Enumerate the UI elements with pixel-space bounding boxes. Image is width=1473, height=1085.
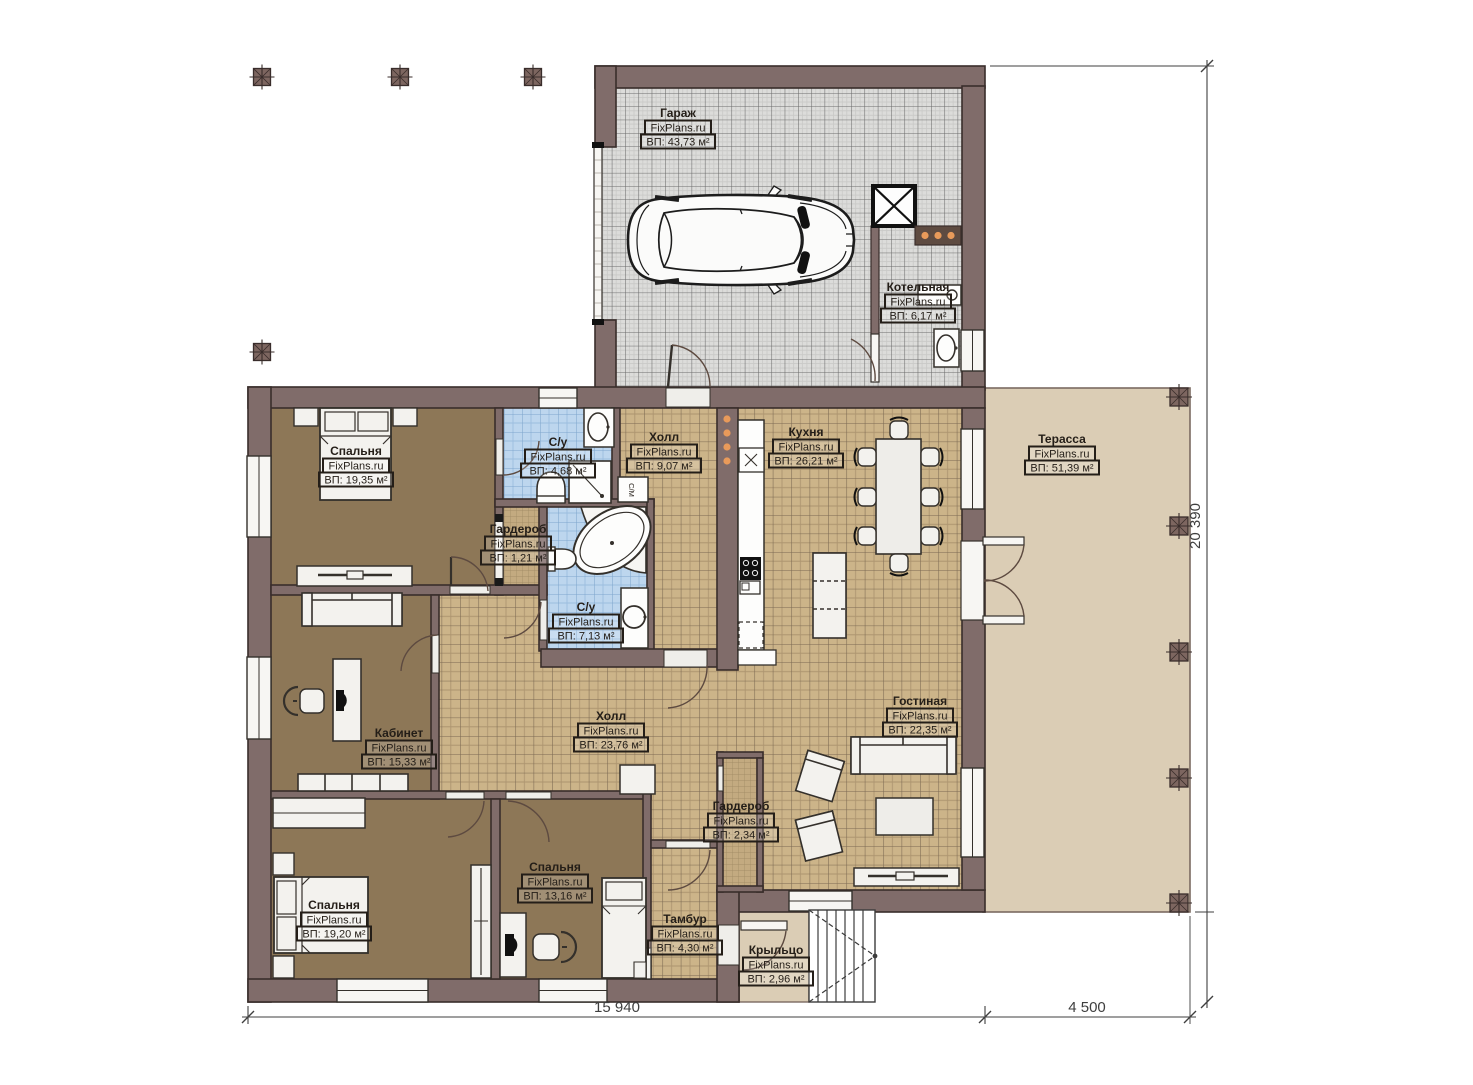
svg-text:Кухня: Кухня bbox=[788, 425, 823, 439]
svg-text:FixPlans.ru: FixPlans.ru bbox=[748, 960, 803, 972]
svg-text:ВП: 4,30 м²: ВП: 4,30 м² bbox=[656, 943, 713, 955]
svg-text:ВП: 2,96 м²: ВП: 2,96 м² bbox=[747, 974, 804, 986]
svg-text:Терасса: Терасса bbox=[1038, 432, 1086, 446]
svg-text:ВП: 26,21 м²: ВП: 26,21 м² bbox=[774, 456, 838, 468]
svg-text:ВП: 13,16 м²: ВП: 13,16 м² bbox=[523, 891, 587, 903]
svg-text:ВП: 6,17 м²: ВП: 6,17 м² bbox=[889, 311, 946, 323]
svg-text:ВП: 2,34 м²: ВП: 2,34 м² bbox=[712, 830, 769, 842]
svg-text:ВП: 4,68 м²: ВП: 4,68 м² bbox=[529, 466, 586, 478]
svg-text:20 390: 20 390 bbox=[1187, 503, 1204, 549]
svg-text:Спальня: Спальня bbox=[308, 898, 360, 912]
svg-text:Гостиная: Гостиная bbox=[893, 694, 947, 708]
svg-text:Кабинет: Кабинет bbox=[375, 726, 424, 740]
svg-text:Тамбур: Тамбур bbox=[663, 912, 707, 926]
svg-text:ВП: 23,76 м²: ВП: 23,76 м² bbox=[579, 740, 643, 752]
svg-text:С/М: С/М bbox=[627, 483, 636, 497]
svg-text:ВП: 15,33 м²: ВП: 15,33 м² bbox=[367, 757, 431, 769]
svg-text:Гардероб: Гардероб bbox=[490, 522, 547, 536]
svg-text:FixPlans.ru: FixPlans.ru bbox=[527, 877, 582, 889]
svg-text:FixPlans.ru: FixPlans.ru bbox=[306, 915, 361, 927]
svg-text:ВП: 9,07 м²: ВП: 9,07 м² bbox=[635, 461, 692, 473]
svg-text:FixPlans.ru: FixPlans.ru bbox=[583, 726, 638, 738]
svg-text:FixPlans.ru: FixPlans.ru bbox=[1034, 449, 1089, 461]
svg-text:Гараж: Гараж bbox=[660, 106, 696, 120]
svg-text:Холл: Холл bbox=[596, 709, 626, 723]
svg-text:FixPlans.ru: FixPlans.ru bbox=[328, 461, 383, 473]
svg-text:ВП: 1,21 м²: ВП: 1,21 м² bbox=[489, 553, 546, 565]
svg-text:FixPlans.ru: FixPlans.ru bbox=[490, 539, 545, 551]
svg-text:Гардероб: Гардероб bbox=[713, 799, 770, 813]
svg-text:FixPlans.ru: FixPlans.ru bbox=[530, 452, 585, 464]
svg-text:Холл: Холл bbox=[649, 430, 679, 444]
svg-text:ВП: 19,35 м²: ВП: 19,35 м² bbox=[324, 475, 388, 487]
svg-text:15 940: 15 940 bbox=[594, 999, 640, 1016]
svg-text:FixPlans.ru: FixPlans.ru bbox=[650, 123, 705, 135]
svg-text:Спальня: Спальня bbox=[529, 860, 581, 874]
svg-text:FixPlans.ru: FixPlans.ru bbox=[558, 617, 613, 629]
svg-text:FixPlans.ru: FixPlans.ru bbox=[890, 297, 945, 309]
svg-text:Крыльцо: Крыльцо bbox=[749, 943, 804, 957]
svg-text:4 500: 4 500 bbox=[1068, 999, 1106, 1016]
svg-text:FixPlans.ru: FixPlans.ru bbox=[713, 816, 768, 828]
svg-text:FixPlans.ru: FixPlans.ru bbox=[892, 711, 947, 723]
svg-text:FixPlans.ru: FixPlans.ru bbox=[371, 743, 426, 755]
svg-text:ВП: 22,35 м²: ВП: 22,35 м² bbox=[888, 725, 952, 737]
svg-text:ВП: 19,20 м²: ВП: 19,20 м² bbox=[302, 929, 366, 941]
svg-text:ВП: 43,73 м²: ВП: 43,73 м² bbox=[646, 137, 710, 149]
svg-text:С/у: С/у bbox=[577, 600, 596, 614]
svg-text:С/у: С/у bbox=[549, 435, 568, 449]
svg-text:Спальня: Спальня bbox=[330, 444, 382, 458]
svg-text:FixPlans.ru: FixPlans.ru bbox=[636, 447, 691, 459]
svg-text:Котельная: Котельная bbox=[887, 280, 950, 294]
svg-text:ВП: 51,39 м²: ВП: 51,39 м² bbox=[1030, 463, 1094, 475]
svg-text:FixPlans.ru: FixPlans.ru bbox=[778, 442, 833, 454]
svg-text:ВП: 7,13 м²: ВП: 7,13 м² bbox=[557, 631, 614, 643]
svg-text:FixPlans.ru: FixPlans.ru bbox=[657, 929, 712, 941]
